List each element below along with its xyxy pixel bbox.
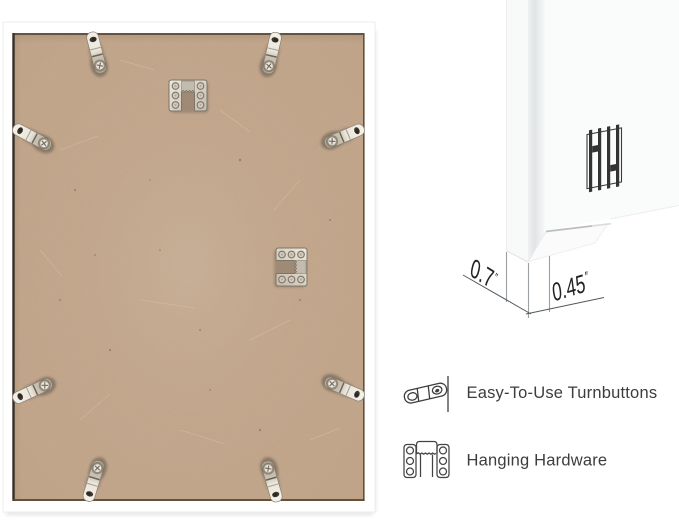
svg-text:Hanging Hardware: Hanging Hardware (467, 452, 608, 470)
svg-text:Easy-To-Use Turnbuttons: Easy-To-Use Turnbuttons (467, 384, 658, 402)
